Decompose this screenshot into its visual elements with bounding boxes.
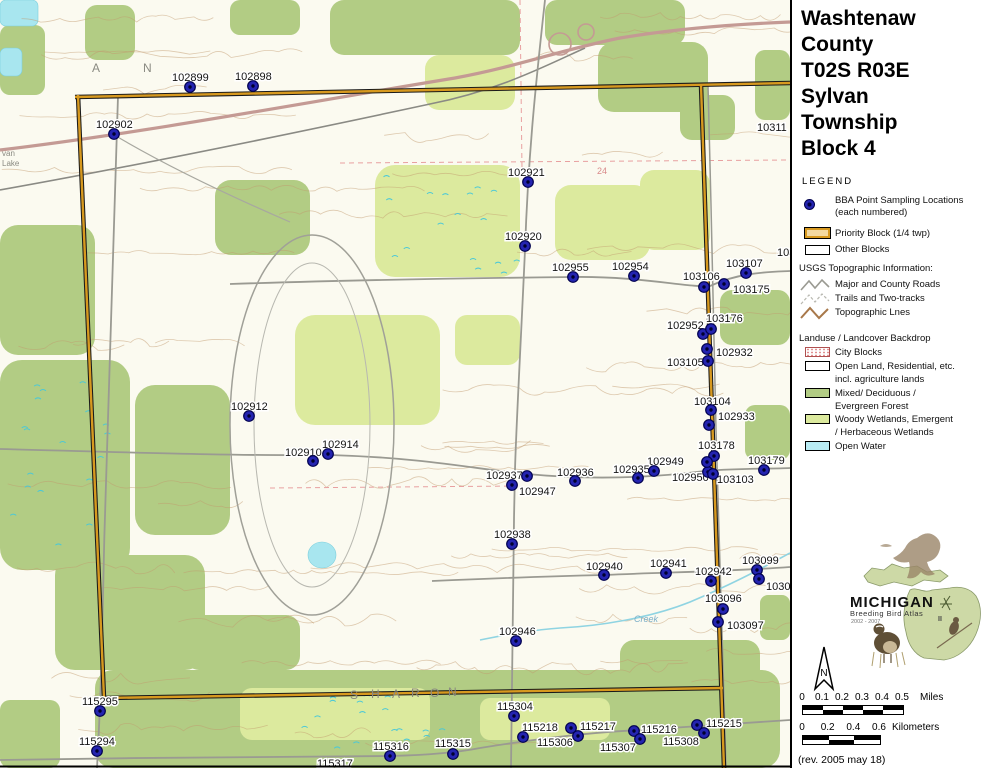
bba-point-center (98, 709, 101, 712)
bba-point-center (709, 408, 712, 411)
bba-point-center (388, 754, 391, 757)
bba-point-center (652, 469, 655, 472)
bba-point-center (705, 347, 708, 350)
bba-point-label: 102947 (519, 486, 556, 498)
bba-point-label: 103105 (667, 357, 704, 369)
bba-point-label: 115218 (522, 722, 558, 734)
bba-point-center (526, 180, 529, 183)
bba-point-center (632, 729, 635, 732)
bba-point-label: 102932 (716, 347, 753, 359)
map-letter: Creek (634, 614, 659, 624)
kilometers-scale-bar: 00.20.40.6Kilometers (792, 722, 1000, 748)
bba-point-label: 103175 (733, 284, 770, 296)
map-letter: S (350, 688, 358, 702)
map-letter: N (143, 61, 152, 75)
title-line: County (801, 32, 916, 58)
miles-scale-bar: 00.10.20.30.40.5Miles (792, 692, 1000, 718)
bba-point-label: 115307 (600, 742, 636, 754)
legend-woody-label2: / Herbaceous Wetlands (835, 427, 934, 438)
legend-water-label: Open Water (835, 441, 886, 452)
legend-topo-label: Topographic Lnes (835, 307, 910, 318)
bba-point-label: 102954 (612, 261, 649, 273)
map-area: ANSHARON24CreekvanLake 10289910289910289… (0, 0, 790, 768)
bba-point-center (247, 414, 250, 417)
bba-point-label: 115306 (537, 737, 573, 749)
bba-point-center (571, 275, 574, 278)
bba-point-center (188, 85, 191, 88)
topographic-lines-icon (800, 306, 830, 320)
bba-point-label-partial: 10311 (757, 122, 787, 134)
bba-point-center (311, 459, 314, 462)
bba-point-center (573, 479, 576, 482)
bba-point-center (705, 460, 708, 463)
scale-tick: 0.4 (875, 692, 889, 703)
bba-point-center (701, 332, 704, 335)
scale-tick: 0 (799, 692, 805, 703)
bba-point-center (744, 271, 747, 274)
bba-point-label: 103178 (698, 440, 735, 452)
topographic-map: ANSHARON24CreekvanLake 10289910289910289… (0, 0, 790, 768)
legend-panel: Washtenaw County T02S R03E Sylvan Townsh… (790, 0, 1000, 768)
legend-trails-label: Trails and Two-tracks (835, 293, 925, 304)
scale-tick: 0.3 (855, 692, 869, 703)
legend-heading: LEGEND (802, 176, 853, 187)
bba-point-label: 103103 (717, 474, 754, 486)
quail-illustration (874, 624, 901, 664)
bba-point-center (514, 639, 517, 642)
bba-point-label: 115308 (663, 736, 699, 748)
bba-point-center (762, 468, 765, 471)
legend-open-label2: incl. agriculture lands (835, 374, 924, 385)
title-line: Township (801, 110, 916, 136)
map-letter: A (92, 61, 100, 75)
title-line: Block 4 (801, 136, 916, 162)
legend-bba-label2: (each numbered) (835, 207, 907, 218)
open-water-swatch (805, 441, 830, 451)
scale-tick: 0.2 (821, 722, 835, 733)
scale-bar (802, 705, 904, 715)
logo-numeral: II (938, 616, 942, 623)
legend-priority-label: Priority Block (1/4 twp) (835, 228, 930, 239)
bba-point-center (711, 472, 714, 475)
bba-point-center (638, 737, 641, 740)
priority-block-swatch (805, 228, 830, 238)
grass-strokes (872, 652, 905, 668)
bba-point-center (716, 620, 719, 623)
bba-point-center (525, 474, 528, 477)
map-letter: O (430, 686, 439, 700)
bba-point-center (112, 132, 115, 135)
title-line: T02S R03E (801, 58, 916, 84)
bba-point-center (722, 282, 725, 285)
bba-point-center (695, 723, 698, 726)
north-arrow: N (808, 644, 853, 694)
scale-tick: 0 (799, 722, 805, 733)
map-title: Washtenaw County T02S R03E Sylvan Townsh… (792, 6, 907, 162)
title-line: Washtenaw (801, 6, 916, 32)
bba-point-label: 115216 (641, 724, 677, 736)
landuse-header: Landuse / Landcover Backdrop (799, 333, 931, 344)
bba-point-center (251, 84, 254, 87)
scale-tick: 0.1 (815, 692, 829, 703)
usgs-header: USGS Topographic Information: (799, 263, 933, 274)
bba-point-center (95, 749, 98, 752)
bba-point-center (706, 359, 709, 362)
bba-point-center (721, 607, 724, 610)
bba-point-label-partial: 103 (777, 247, 790, 259)
map-letter: A (392, 687, 400, 701)
legend-woody-label: Woody Wetlands, Emergent (835, 414, 953, 425)
bba-point-center (664, 571, 667, 574)
bba-point-label: 102952 (667, 320, 704, 332)
legend-mixed-label: Mixed/ Deciduous / (835, 388, 916, 399)
legend-other-label: Other Blocks (835, 244, 889, 255)
bba-point-center (709, 327, 712, 330)
map-letter: Lake (2, 159, 20, 168)
scale-tick: 0.2 (835, 692, 849, 703)
bba-point-center (757, 577, 760, 580)
legend-mixed-label2: Evergreen Forest (835, 401, 908, 412)
bba-point-center (510, 542, 513, 545)
title-line: Sylvan (801, 84, 916, 110)
bba-point-label: 115217 (580, 721, 616, 733)
bba-point-label: 102935 (613, 464, 650, 476)
bba-point-label: 102933 (718, 411, 755, 423)
map-letter: N (448, 685, 457, 699)
bba-point-label-partial: 1030 (766, 581, 790, 593)
bba-point-center (712, 454, 715, 457)
atlas-map-sheet: ANSHARON24CreekvanLake 10289910289910289… (0, 0, 1000, 768)
map-letter: van (2, 149, 15, 158)
bba-point-label: 103097 (727, 620, 764, 632)
logo-years: 2002 - 2007 (851, 619, 880, 625)
bba-point-label: 115215 (706, 718, 742, 730)
legend-major-roads-label: Major and County Roads (835, 279, 940, 290)
bba-point-center (707, 423, 710, 426)
logo-subtitle: Breeding Bird Atlas (850, 609, 923, 618)
map-letter: R (411, 686, 420, 700)
scale-tick: 0.6 (872, 722, 886, 733)
bba-point-center (451, 752, 454, 755)
map-letter: H (371, 687, 380, 701)
bba-point-center (326, 452, 329, 455)
scale-unit: Kilometers (892, 722, 939, 733)
bba-point-center (523, 244, 526, 247)
map-letter: 24 (597, 166, 607, 176)
scale-tick: 0.5 (895, 692, 909, 703)
scale-tick: 0.4 (846, 722, 860, 733)
bba-point-center (632, 274, 635, 277)
scale-bar (802, 735, 881, 745)
revision-note: (rev. 2005 may 18) (798, 754, 885, 766)
trails-icon (800, 292, 830, 306)
city-blocks-swatch (805, 347, 830, 357)
mixed-forest-swatch (805, 388, 830, 398)
bba-point-center (576, 734, 579, 737)
north-arrow-label: N (820, 668, 827, 679)
bba-point-center (510, 483, 513, 486)
bba-point-center (521, 735, 524, 738)
bba-point-center (755, 568, 758, 571)
bba-point-label: 102937 (486, 470, 523, 482)
major-roads-icon (800, 278, 830, 292)
legend-open-label: Open Land, Residential, etc. (835, 361, 955, 372)
other-blocks-swatch (805, 245, 830, 255)
small-flying-bird (880, 544, 892, 547)
woody-wetlands-swatch (805, 414, 830, 424)
bba-point-icon (804, 199, 815, 210)
bba-point-center (702, 731, 705, 734)
open-land-swatch (805, 361, 830, 371)
bba-point-center (636, 476, 639, 479)
bba-point-center (512, 714, 515, 717)
bba-point-center (602, 573, 605, 576)
bba-point-center (569, 726, 572, 729)
bba-point-center (702, 285, 705, 288)
bba-point-center (709, 579, 712, 582)
legend-bba-label: BBA Point Sampling Locations (835, 195, 963, 206)
michigan-upper-peninsula (864, 564, 948, 586)
scale-unit: Miles (920, 692, 943, 703)
legend-city-label: City Blocks (835, 347, 882, 358)
bba-point-label: 103106 (683, 271, 720, 283)
